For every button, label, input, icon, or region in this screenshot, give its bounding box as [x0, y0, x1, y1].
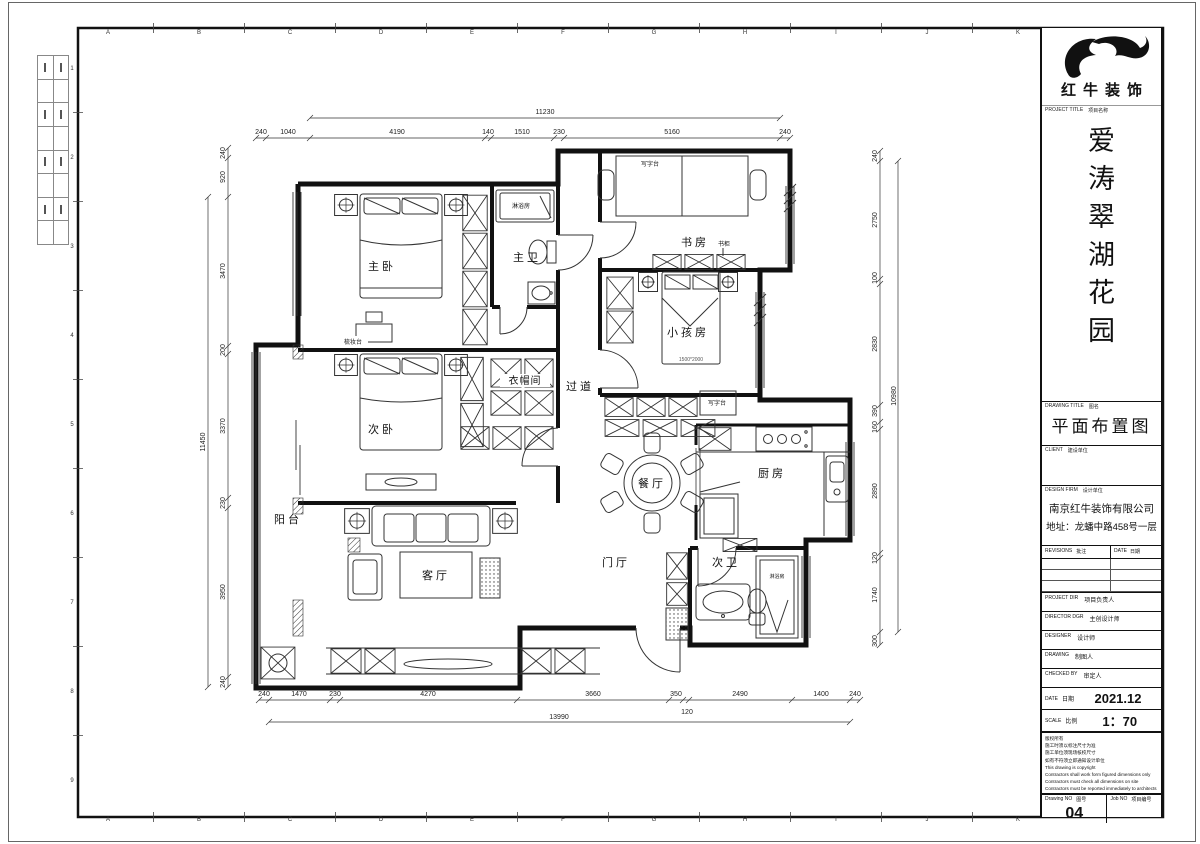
- room-label-master-bath: 主卫: [513, 251, 541, 264]
- master-wardrobe: [463, 195, 487, 345]
- shoe-cabinet: [666, 553, 688, 640]
- drawing-number-row: Drawing NO 图号 04 Job NO 项目编号: [1042, 793, 1161, 823]
- floor-lamp: [480, 558, 500, 598]
- copyright-notes: 版权所有 施工时须以标注尺寸为准 施工单位须现场核校尺寸 如有不符须立即通知设计…: [1042, 731, 1161, 793]
- svg-text:3660: 3660: [585, 691, 601, 698]
- svg-text:1470: 1470: [291, 691, 307, 698]
- room-label-kids-room: 小孩房: [667, 326, 709, 339]
- dimension-text-bottom: 2401470 2304270 3660350 24901400 240 120…: [258, 691, 861, 721]
- client-value-empty: [1042, 455, 1161, 485]
- room-label-living: 客厅: [422, 568, 450, 582]
- annotations: 淋浴房 写字台 书柜 写字台 1500*2000 梳妆台 淋浴房: [338, 158, 785, 580]
- svg-text:5160: 5160: [664, 129, 680, 136]
- drawing-number-value: 04: [1045, 805, 1103, 823]
- svg-text:K: K: [1016, 30, 1020, 36]
- svg-text:C: C: [288, 817, 293, 823]
- svg-text:G: G: [652, 30, 657, 36]
- svg-text:160: 160: [872, 421, 879, 433]
- drawing-row: DRAWING制图人: [1042, 649, 1161, 668]
- svg-text:D: D: [379, 817, 384, 823]
- svg-text:300: 300: [872, 635, 879, 647]
- svg-text:230: 230: [329, 691, 341, 698]
- svg-text:140: 140: [482, 129, 494, 136]
- svg-text:A: A: [106, 817, 110, 823]
- svg-text:240: 240: [849, 691, 861, 698]
- svg-text:240: 240: [255, 129, 267, 136]
- client-label: CLIENT 建设单位: [1042, 445, 1161, 455]
- closet-label-group: 衣帽间: [500, 374, 550, 387]
- svg-text:120: 120: [681, 709, 693, 716]
- anno-shower-second: 淋浴房: [769, 573, 784, 580]
- svg-text:240: 240: [779, 129, 791, 136]
- svg-text:2: 2: [70, 155, 74, 161]
- dimension-text-top: 2401040 4190140 1510230 5160240 11230: [255, 109, 791, 136]
- tv-cabinet: [326, 648, 600, 674]
- svg-text:390: 390: [872, 405, 879, 417]
- closet-wardrobe: [461, 357, 553, 449]
- kitchen-sink: [826, 456, 848, 502]
- dimension-text-right: 240 2750 100 2830 390 160 2890 120 1740 …: [872, 150, 898, 647]
- svg-text:2890: 2890: [872, 483, 879, 499]
- room-label-second-bath: 次卫: [712, 555, 740, 569]
- drawing-title: 平面布置图: [1042, 411, 1161, 445]
- svg-text:A: A: [106, 30, 110, 36]
- title-block: 红牛装饰 PROJECT TITLE 项目名称 爱 涛 翠 湖 花 园 DRAW…: [1040, 28, 1163, 817]
- nightstand: [335, 195, 358, 216]
- scale-row: SCALE 比例 1：70: [1042, 709, 1161, 731]
- master-bed: [360, 194, 442, 298]
- svg-text:11450: 11450: [200, 432, 207, 451]
- svg-text:230: 230: [220, 497, 227, 509]
- anno-bed-size: 1500*2000: [679, 357, 703, 363]
- room-label-balcony: 阳台: [274, 512, 302, 526]
- anno-shower-master: 淋浴房: [512, 202, 530, 210]
- designer-row: DESIGNER设计师: [1042, 630, 1161, 649]
- room-label-study: 书房: [681, 236, 709, 249]
- bull-logo-icon: [1054, 32, 1150, 80]
- revisions-table: REVISIONS 批注 DATE 日期: [1042, 545, 1161, 592]
- dimensions: [205, 115, 901, 725]
- room-label-master-bedroom: 主卧: [368, 260, 396, 273]
- company-name: 红牛装饰: [1042, 80, 1161, 106]
- design-firm: 南京红牛装饰有限公司 地址：龙蟠中路458号一层: [1042, 501, 1161, 545]
- checked-by-row: CHECKED BY审定人: [1042, 668, 1161, 687]
- svg-text:9: 9: [70, 778, 74, 784]
- side-table: [493, 509, 518, 534]
- washing-machine: [261, 647, 295, 679]
- svg-text:200: 200: [220, 344, 227, 356]
- svg-text:H: H: [743, 30, 747, 36]
- room-label-closet: 衣帽间: [509, 374, 542, 387]
- drawing-sheet: AB CD EF GH IJ K AB CD EF GH IJ K 12 34 …: [0, 0, 1200, 844]
- svg-text:I: I: [835, 30, 837, 36]
- svg-text:3950: 3950: [220, 584, 227, 600]
- room-label-second-bedroom: 次卧: [368, 422, 396, 436]
- date-value: 2021.12: [1078, 691, 1158, 706]
- study-desks: [598, 156, 766, 216]
- sink-master: [528, 282, 555, 304]
- svg-text:1: 1: [70, 66, 74, 72]
- svg-text:4270: 4270: [420, 691, 436, 698]
- room-label-kitchen: 厨房: [758, 467, 786, 480]
- svg-text:920: 920: [220, 171, 227, 183]
- company-logo: [1042, 28, 1161, 80]
- svg-text:F: F: [561, 817, 565, 823]
- floor-plan-canvas: AB CD EF GH IJ K AB CD EF GH IJ K 12 34 …: [0, 0, 1200, 844]
- svg-text:3: 3: [70, 244, 74, 250]
- room-label-corridor: 过道: [566, 379, 594, 393]
- project-title-label: PROJECT TITLE 项目名称: [1042, 106, 1161, 116]
- study-bookcase: [653, 248, 745, 270]
- svg-text:4: 4: [70, 333, 74, 339]
- svg-text:K: K: [1016, 817, 1020, 823]
- project-name: 爱 涛 翠 湖 花 园: [1042, 116, 1161, 366]
- svg-text:D: D: [379, 30, 384, 36]
- fridge: [700, 482, 740, 538]
- second-bath-fixtures: [696, 538, 798, 638]
- svg-text:E: E: [470, 817, 474, 823]
- svg-text:230: 230: [553, 129, 565, 136]
- exterior-walls: [256, 151, 850, 688]
- dimension-text-left: 240 920 3470 200 3370 230 3950 240 11450: [200, 147, 227, 688]
- drawing-frame: [73, 23, 1163, 822]
- svg-text:G: G: [652, 817, 657, 823]
- furniture: [261, 156, 850, 679]
- side-table: [345, 509, 370, 534]
- svg-text:2490: 2490: [732, 691, 748, 698]
- grid-letters-top: AB CD EF GH IJ K: [106, 30, 1020, 36]
- room-label-dining: 餐厅: [638, 476, 666, 490]
- svg-text:11230: 11230: [536, 109, 555, 116]
- svg-text:120: 120: [872, 552, 879, 564]
- svg-text:1040: 1040: [280, 129, 296, 136]
- svg-text:6: 6: [70, 511, 74, 517]
- signature-strip: [37, 55, 69, 245]
- svg-text:10980: 10980: [891, 386, 898, 406]
- sofa: [372, 506, 490, 546]
- wall-hatch-blocks: [293, 345, 360, 636]
- svg-text:5: 5: [70, 422, 74, 428]
- svg-text:350: 350: [670, 691, 682, 698]
- svg-text:1400: 1400: [813, 691, 829, 698]
- svg-text:240: 240: [872, 150, 879, 162]
- svg-text:2830: 2830: [872, 336, 879, 352]
- drawing-title-label: DRAWING TITLE 图名: [1042, 401, 1161, 411]
- grid-numbers-left: 12 34 56 78 9: [70, 66, 74, 784]
- nightstand: [719, 273, 738, 292]
- svg-text:J: J: [926, 817, 929, 823]
- design-firm-label: DESIGN FIRM 设计单位: [1042, 485, 1161, 495]
- svg-text:F: F: [561, 30, 565, 36]
- svg-text:J: J: [926, 30, 929, 36]
- svg-text:1510: 1510: [514, 129, 530, 136]
- kitchen-counter: [696, 427, 850, 536]
- design-firm-name: 南京红牛装饰有限公司: [1042, 501, 1161, 516]
- director-row: DIRECTOR DGR主创设计师: [1042, 611, 1161, 630]
- armchair: [348, 554, 382, 600]
- svg-text:100: 100: [872, 272, 879, 284]
- room-labels: 主卧 主卫 书房 小孩房 过道 次卧 餐厅 厨房 阳台 客厅 门厅 次卫: [274, 236, 786, 582]
- svg-text:13990: 13990: [549, 714, 569, 721]
- project-dir-row: PROJECT DIR项目负责人: [1042, 592, 1161, 611]
- anno-bookcase: 书柜: [718, 240, 730, 248]
- nightstand: [639, 273, 658, 292]
- svg-text:1740: 1740: [872, 587, 879, 603]
- svg-text:B: B: [197, 817, 201, 823]
- anno-desk-study: 写字台: [641, 160, 659, 168]
- svg-text:C: C: [288, 30, 293, 36]
- scale-value: 1：70: [1081, 711, 1158, 730]
- anno-desk-kids: 写字台: [708, 399, 726, 407]
- svg-text:240: 240: [220, 676, 227, 688]
- svg-text:240: 240: [258, 691, 270, 698]
- anno-dresser: 梳妆台: [344, 338, 362, 346]
- svg-text:H: H: [743, 817, 747, 823]
- svg-text:3470: 3470: [220, 263, 227, 279]
- second-bedroom-cabinet: [366, 474, 436, 490]
- design-firm-address: 地址：龙蟠中路458号一层: [1042, 519, 1161, 533]
- svg-text:E: E: [470, 30, 474, 36]
- svg-text:2750: 2750: [872, 212, 879, 228]
- kids-wardrobe: [607, 277, 633, 343]
- svg-text:8: 8: [70, 689, 74, 695]
- svg-text:240: 240: [220, 147, 227, 159]
- kids-bed: [662, 272, 720, 364]
- nightstand: [335, 355, 358, 376]
- svg-text:B: B: [197, 30, 201, 36]
- room-label-foyer: 门厅: [602, 555, 630, 569]
- svg-text:3370: 3370: [220, 418, 227, 434]
- date-row: DATE 日期 2021.12: [1042, 687, 1161, 709]
- svg-text:4190: 4190: [389, 129, 405, 136]
- svg-text:7: 7: [70, 600, 74, 606]
